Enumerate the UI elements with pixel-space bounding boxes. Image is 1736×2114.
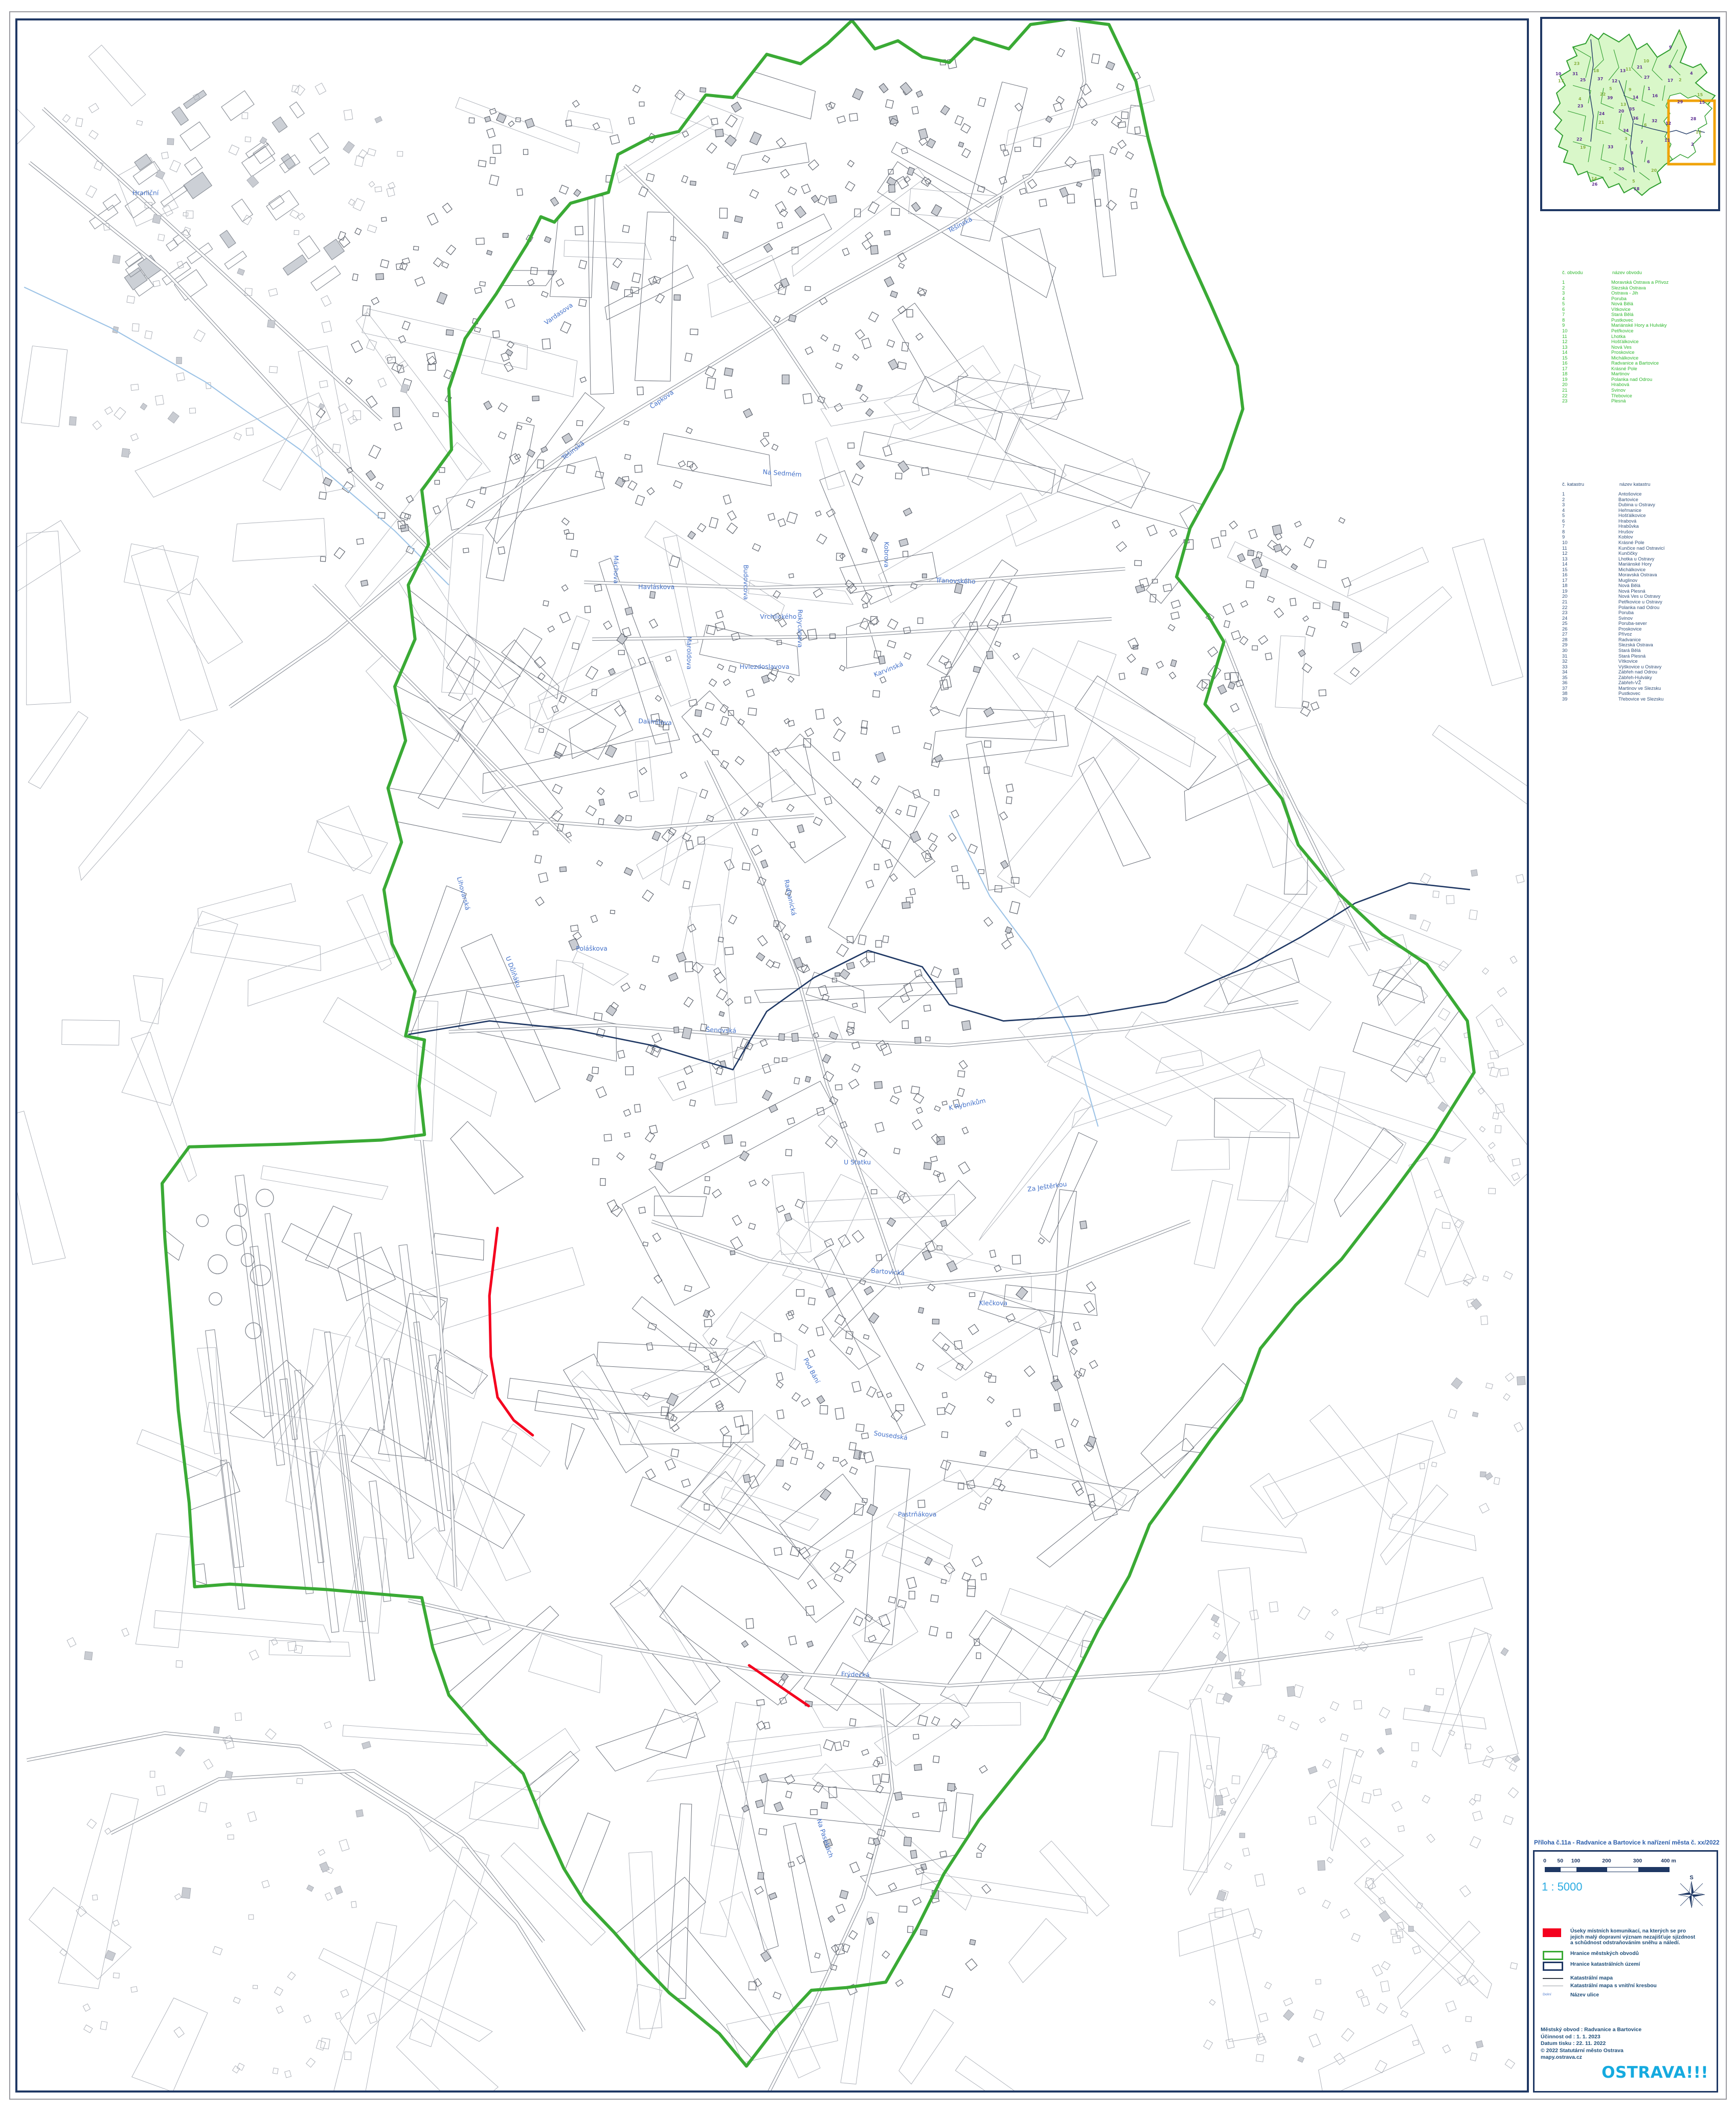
legend-label: Katastrální mapa bbox=[1570, 1975, 1613, 1982]
credits-block: Městský obvod : Radvanice a BartoviceÚči… bbox=[1541, 2027, 1641, 2061]
street-label: Pod Bání bbox=[802, 1357, 822, 1385]
row-number: 11 bbox=[1562, 546, 1618, 551]
row-name: Muglinov bbox=[1618, 578, 1637, 583]
legend-label: Hranice městských obvodů bbox=[1570, 1951, 1639, 1957]
inset-cadastre-number: 23 bbox=[1577, 104, 1583, 108]
row-name: Hrušov bbox=[1618, 529, 1633, 534]
inset-cadastre-number: 24 bbox=[1599, 111, 1605, 116]
row-name: Nová Bělá bbox=[1611, 301, 1633, 306]
inset-district-number: 11 bbox=[1626, 67, 1632, 72]
inset-cadastre-number: 9 bbox=[1669, 45, 1672, 50]
street-label: Kobrova bbox=[883, 542, 891, 567]
row-number: 18 bbox=[1562, 371, 1611, 377]
street-label: Lihovarská bbox=[456, 876, 472, 911]
credits-line: Účinnost od : 1. 1. 2023 bbox=[1541, 2034, 1641, 2041]
row-number: 12 bbox=[1562, 339, 1611, 345]
list-header-name: název katastru bbox=[1619, 482, 1650, 487]
row-name: Pustkovec bbox=[1611, 318, 1633, 323]
street-label: Máchova bbox=[613, 555, 620, 584]
street-label: Těšínská bbox=[559, 439, 585, 462]
list-row: 23Plesná bbox=[1562, 398, 1626, 404]
inset-cadastre-number: 32 bbox=[1652, 119, 1657, 123]
row-number: 17 bbox=[1562, 578, 1618, 583]
row-number: 3 bbox=[1562, 502, 1618, 508]
list-row: 21Svinov bbox=[1562, 388, 1626, 393]
district-boundary-green bbox=[162, 20, 1474, 2066]
inset-cadastre-number: 20 bbox=[1618, 109, 1625, 114]
title-block: 050100200300400 m 1 : 5000 S Úseky místn… bbox=[1533, 1850, 1718, 2093]
row-name: Zábřeh-VŽ bbox=[1618, 680, 1641, 685]
inset-district-number: 9 bbox=[1629, 87, 1632, 92]
row-number: 23 bbox=[1562, 398, 1611, 404]
cadastral-linework-outside bbox=[17, 45, 1527, 2090]
row-number: 19 bbox=[1562, 377, 1611, 383]
list-row: 14Mariánské Hory bbox=[1562, 561, 1652, 567]
list-row: 11Lhotka bbox=[1562, 334, 1626, 340]
inset-district-number: 22 bbox=[1600, 92, 1606, 97]
row-name: Hošťálkovice bbox=[1611, 339, 1639, 344]
row-name: Hrabová bbox=[1611, 382, 1629, 387]
row-name: Přívoz bbox=[1618, 632, 1632, 637]
legend-label: Katastrální mapa s vnitřní kresbou bbox=[1570, 1983, 1657, 1989]
list-row: 12Kunčičky bbox=[1562, 551, 1637, 556]
inset-district-number: 3 bbox=[1625, 137, 1628, 141]
row-name: Radvanice a Bartovice bbox=[1611, 361, 1659, 366]
row-name: Vítkovice bbox=[1618, 659, 1638, 664]
inset-cadastre-number: 15 bbox=[1699, 100, 1705, 105]
inset-district-number: 15 bbox=[1697, 93, 1703, 97]
inset-cadastre-number: 1 bbox=[1648, 86, 1651, 91]
inset-cadastre-number: 31 bbox=[1572, 72, 1579, 76]
row-name: Lhotka bbox=[1611, 334, 1626, 339]
list-row: 24Svinov bbox=[1562, 616, 1633, 621]
list-row: 38Pustkovec bbox=[1562, 691, 1640, 696]
row-number: 14 bbox=[1562, 350, 1611, 355]
street-label: Dalimilova bbox=[638, 717, 672, 726]
list-row: 26Proskovice bbox=[1562, 626, 1641, 632]
sheet-title: Příloha č.11a - Radvanice a Bartovice k … bbox=[1534, 1839, 1718, 1846]
street-label: Vrchlického bbox=[760, 613, 797, 620]
list-row: 16Radvanice a Bartovice bbox=[1562, 361, 1659, 366]
list-row: 27Přívoz bbox=[1562, 632, 1632, 637]
street-label: U Statku bbox=[844, 1158, 871, 1166]
row-number: 20 bbox=[1562, 594, 1618, 599]
list-row: 10Krásné Pole bbox=[1562, 540, 1644, 546]
row-number: 2 bbox=[1562, 497, 1618, 503]
row-name: Pustkovec bbox=[1618, 691, 1640, 696]
row-name: Polanka nad Odrou bbox=[1618, 605, 1659, 610]
row-number: 10 bbox=[1562, 328, 1611, 334]
list-row: 22Třebovice bbox=[1562, 393, 1632, 399]
row-name: Výškovice u Ostravy bbox=[1618, 664, 1661, 669]
scalebar bbox=[1545, 1867, 1670, 1872]
row-name: Svinov bbox=[1618, 616, 1633, 621]
inset-cadastre-number: 8 bbox=[1669, 64, 1672, 69]
list-row: 2Slezská Ostrava bbox=[1562, 285, 1646, 291]
row-number: 2 bbox=[1562, 285, 1611, 291]
row-name: Lhotka u Ostravy bbox=[1618, 556, 1654, 561]
list-row: 8Hrušov bbox=[1562, 529, 1633, 535]
row-name: Hrabůvka bbox=[1618, 524, 1639, 529]
inset-district-number: 7 bbox=[1609, 167, 1612, 171]
list-row: 9Mariánské Hory a Hulváky bbox=[1562, 323, 1667, 328]
list-row: 16Moravská Ostrava bbox=[1562, 572, 1657, 578]
row-number: 9 bbox=[1562, 323, 1611, 328]
list-row: 9Koblov bbox=[1562, 534, 1633, 540]
street-label: Poláškova bbox=[576, 944, 607, 952]
legend-label: Úseky místních komunikací, na kterých se… bbox=[1570, 1928, 1695, 1946]
inset-cadastre-number: 21 bbox=[1637, 65, 1643, 70]
inset-cadastre-number: 27 bbox=[1644, 75, 1650, 80]
row-name: Plesná bbox=[1611, 398, 1626, 403]
scalebar-segment bbox=[1545, 1868, 1561, 1872]
street-labels: TěšínskáTěšínskáNa SedmémTřanovskéhoKobr… bbox=[132, 189, 1067, 1859]
list-row: 5Nová Bělá bbox=[1562, 301, 1633, 307]
inset-cadastre-number: 22 bbox=[1576, 137, 1582, 142]
row-name: Moravská Ostrava bbox=[1618, 572, 1657, 577]
row-number: 8 bbox=[1562, 529, 1618, 535]
legend-swatch-red bbox=[1543, 1928, 1561, 1937]
row-number: 30 bbox=[1562, 648, 1618, 654]
inset-district-number: 21 bbox=[1598, 120, 1605, 125]
legend-swatch-green bbox=[1543, 1951, 1563, 1960]
legend-swatch-navy bbox=[1543, 1962, 1563, 1971]
row-name: Stará Bělá bbox=[1611, 312, 1633, 317]
inset-cadastre-number: 30 bbox=[1618, 167, 1625, 171]
inset-cadastre-number: 18 bbox=[1634, 187, 1640, 191]
list-row: 25Poruba-sever bbox=[1562, 621, 1647, 626]
inset-district-number: 10 bbox=[1643, 59, 1650, 63]
row-number: 19 bbox=[1562, 589, 1618, 594]
list-row: 10Petřkovice bbox=[1562, 328, 1633, 334]
row-number: 5 bbox=[1562, 301, 1611, 307]
street-label: Budovcova bbox=[742, 565, 750, 600]
map-frame: TěšínskáTěšínskáNa SedmémTřanovskéhoKobr… bbox=[15, 18, 1529, 2093]
map-canvas: TěšínskáTěšínskáNa SedmémTřanovskéhoKobr… bbox=[17, 20, 1527, 2090]
street-label: Vardasova bbox=[543, 301, 574, 326]
row-name: Martinov ve Slezsku bbox=[1618, 686, 1661, 691]
street-label: Hviezdoslavova bbox=[740, 663, 790, 670]
row-number: 10 bbox=[1562, 540, 1618, 546]
row-number: 32 bbox=[1562, 659, 1618, 664]
inset-cadastre-number: 10 bbox=[1555, 72, 1562, 76]
inset-district-number: 20 bbox=[1651, 168, 1657, 173]
list-row: 1Antošovice bbox=[1562, 491, 1641, 497]
list-header-number: č. obvodu bbox=[1562, 270, 1583, 276]
map-scale: 1 : 5000 bbox=[1542, 1880, 1583, 1894]
row-name: Petřkovice bbox=[1611, 328, 1633, 333]
row-number: 21 bbox=[1562, 599, 1618, 605]
stream-lines bbox=[24, 287, 1098, 1127]
row-name: Dubina u Ostravy bbox=[1618, 502, 1655, 507]
inset-cadastre-number: 28 bbox=[1690, 117, 1697, 121]
legend-swatch-gray bbox=[1543, 1986, 1563, 1986]
row-number: 16 bbox=[1562, 572, 1618, 578]
row-name: Radvanice bbox=[1618, 637, 1641, 642]
row-number: 13 bbox=[1562, 556, 1618, 562]
row-name: Stará Plesná bbox=[1618, 654, 1645, 659]
street-label: Za Ještěrkou bbox=[1027, 1180, 1067, 1193]
row-name: Poruba-sever bbox=[1618, 621, 1647, 626]
street-label: Bartovická bbox=[871, 1267, 905, 1277]
row-number: 3 bbox=[1562, 290, 1611, 296]
row-number: 24 bbox=[1562, 616, 1618, 621]
list-row: 31Stará Plesná bbox=[1562, 654, 1645, 659]
inset-cadastre-number: 35 bbox=[1629, 107, 1635, 111]
row-number: 6 bbox=[1562, 519, 1618, 524]
scalebar-tick: 400 m bbox=[1661, 1858, 1676, 1864]
inset-cadastre-number: 16 bbox=[1652, 94, 1658, 98]
row-number: 12 bbox=[1562, 551, 1618, 556]
inset-cadastre-number: 4 bbox=[1690, 71, 1693, 76]
scalebar-segment bbox=[1561, 1868, 1576, 1872]
row-name: Mariánské Hory a Hulváky bbox=[1611, 323, 1667, 328]
list-row: 6Hrabová bbox=[1562, 519, 1636, 524]
row-number: 13 bbox=[1562, 345, 1611, 350]
row-name: Nová Ves u Ostravy bbox=[1618, 594, 1660, 599]
row-name: Krásné Pole bbox=[1611, 366, 1637, 371]
row-name: Nová Bělá bbox=[1618, 583, 1640, 588]
scalebar-tick: 100 bbox=[1571, 1858, 1581, 1864]
row-number: 38 bbox=[1562, 691, 1618, 696]
building-footprints bbox=[60, 49, 1525, 2078]
row-number: 27 bbox=[1562, 632, 1618, 637]
row-number: 23 bbox=[1562, 610, 1618, 616]
row-name: Krásné Pole bbox=[1618, 540, 1644, 545]
row-name: Martinov bbox=[1611, 371, 1630, 376]
list-row: 5Hošťálkovice bbox=[1562, 513, 1646, 519]
inset-cadastre-number: 12 bbox=[1665, 121, 1671, 126]
row-number: 6 bbox=[1562, 307, 1611, 312]
list-row: 17Krásné Pole bbox=[1562, 366, 1637, 372]
street-label: Frýdecká bbox=[841, 1670, 870, 1679]
inset-cadastre-number: 2 bbox=[1691, 142, 1694, 147]
row-number: 21 bbox=[1562, 388, 1611, 393]
cadastre-boundary-line bbox=[408, 883, 1470, 1069]
list-row: 11Kunčice nad Ostravicí bbox=[1562, 546, 1664, 551]
inset-cadastre-number: 7 bbox=[1640, 140, 1643, 145]
scalebar-tick: 50 bbox=[1557, 1858, 1563, 1864]
row-number: 25 bbox=[1562, 621, 1618, 626]
legend-swatch-dark bbox=[1543, 1978, 1563, 1979]
cadastral-linework-inside bbox=[17, 69, 1523, 2090]
inset-cadastre-number: 26 bbox=[1592, 182, 1598, 187]
street-label: Radvanická bbox=[783, 879, 798, 916]
list-row: 36Zábřeh-VŽ bbox=[1562, 680, 1641, 686]
row-name: Mariánské Hory bbox=[1618, 561, 1652, 567]
scalebar-tick: 0 bbox=[1543, 1858, 1546, 1864]
row-number: 14 bbox=[1562, 561, 1618, 567]
street-label: Šenovská bbox=[706, 1026, 736, 1034]
street-label: Třanovského bbox=[935, 576, 976, 586]
legend-swatch-street: Dolní bbox=[1543, 1992, 1551, 1996]
row-number: 39 bbox=[1562, 696, 1618, 702]
list-row: 7Stará Bělá bbox=[1562, 312, 1633, 318]
street-label: Na Pasekách bbox=[815, 1818, 835, 1859]
inset-district-number: 5 bbox=[1609, 86, 1612, 91]
inset-cadastre-number: 11 bbox=[1664, 138, 1671, 143]
ostrava-logo: OSTRAVA!!! bbox=[1602, 2063, 1708, 2082]
row-number: 26 bbox=[1562, 626, 1618, 632]
list-row: 20Nová Ves u Ostravy bbox=[1562, 594, 1660, 599]
compass-rose: S bbox=[1674, 1872, 1709, 1915]
row-name: Ostrava - Jih bbox=[1611, 290, 1638, 296]
list-row: 18Martinov bbox=[1562, 371, 1630, 377]
row-number: 29 bbox=[1562, 642, 1618, 648]
legend-list-cadastres: č. katastru název katastru 1Antošovice2B… bbox=[1561, 482, 1715, 707]
row-name: Heřmanice bbox=[1618, 508, 1641, 513]
row-number: 5 bbox=[1562, 513, 1618, 519]
list-row: 28Radvanice bbox=[1562, 637, 1641, 643]
row-name: Zábřeh-Hulváky bbox=[1618, 675, 1652, 680]
inset-cadastre-number: 3 bbox=[1631, 151, 1634, 155]
street-label: K Rybníkům bbox=[948, 1096, 986, 1112]
row-number: 34 bbox=[1562, 669, 1618, 675]
list-row: 19Nová Plesná bbox=[1562, 589, 1645, 594]
scalebar-segment bbox=[1638, 1868, 1670, 1872]
inset-cadastre-number: 14 bbox=[1633, 95, 1639, 100]
inset-district-number: 4 bbox=[1579, 97, 1582, 101]
row-name: Poruba bbox=[1618, 610, 1634, 615]
list-row: 2Bartovice bbox=[1562, 497, 1638, 503]
inset-district-number: 2 bbox=[1679, 78, 1682, 82]
list-row: 3Dubina u Ostravy bbox=[1562, 502, 1655, 508]
inset-district-number: 19 bbox=[1580, 145, 1586, 150]
row-number: 28 bbox=[1562, 637, 1618, 643]
inset-district-number: 18 bbox=[1593, 69, 1599, 73]
inset-district-number: 1 bbox=[1679, 31, 1682, 35]
row-number: 4 bbox=[1562, 296, 1611, 302]
row-number: 9 bbox=[1562, 534, 1618, 540]
row-name: Vítkovice bbox=[1611, 307, 1631, 312]
inset-district-number: 13 bbox=[1620, 102, 1626, 107]
inset-cadastre-number: 17 bbox=[1667, 78, 1673, 83]
scalebar-tick: 300 bbox=[1633, 1858, 1642, 1864]
row-name: Nová Plesná bbox=[1618, 589, 1645, 594]
inset-district-number: 23 bbox=[1574, 61, 1580, 66]
row-number: 15 bbox=[1562, 355, 1611, 361]
list-row: 35Zábřeh-Hulváky bbox=[1562, 675, 1652, 681]
list-row: 37Martinov ve Slezsku bbox=[1562, 686, 1661, 691]
scalebar-segment bbox=[1607, 1868, 1638, 1872]
inset-district-number: 17 bbox=[1558, 79, 1564, 83]
list-row: 13Nová Ves bbox=[1562, 345, 1632, 350]
list-row: 6Vítkovice bbox=[1562, 307, 1631, 312]
list-row: 1Moravská Ostrava a Přívoz bbox=[1562, 280, 1669, 285]
row-name: Slezská Ostrava bbox=[1618, 642, 1653, 647]
row-name: Polanka nad Odrou bbox=[1611, 377, 1652, 382]
row-name: Michálkovice bbox=[1611, 355, 1638, 361]
row-name: Antošovice bbox=[1618, 491, 1641, 497]
row-name: Kunčice nad Ostravicí bbox=[1618, 546, 1664, 551]
row-number: 37 bbox=[1562, 686, 1618, 691]
list-row: 15Michálkovice bbox=[1562, 567, 1645, 573]
map-sheet-page: { "page": { "title": "Příloha č.11a - Ra… bbox=[0, 0, 1736, 2114]
street-label: Na Sedmém bbox=[762, 468, 802, 478]
list-row: 18Nová Bělá bbox=[1562, 583, 1640, 589]
credits-line: mapy.ostrava.cz bbox=[1541, 2054, 1641, 2061]
inset-cadastre-number: 12 bbox=[1612, 79, 1617, 83]
row-name: Bartovice bbox=[1618, 497, 1638, 502]
list-header-name: název obvodu bbox=[1612, 270, 1642, 276]
row-name: Petřkovice u Ostravy bbox=[1618, 599, 1662, 604]
list-row: 15Michálkovice bbox=[1562, 355, 1638, 361]
row-number: 7 bbox=[1562, 524, 1618, 529]
inset-cadastre-number: 39 bbox=[1607, 96, 1613, 100]
list-row: 13Lhotka u Ostravy bbox=[1562, 556, 1654, 562]
street-label: Hraniční bbox=[132, 189, 159, 197]
inset-cadastre-number: 33 bbox=[1608, 145, 1613, 149]
row-name: Moravská Ostrava a Přívoz bbox=[1611, 280, 1669, 285]
row-name: Proskovice bbox=[1618, 626, 1641, 632]
credits-line: Městský obvod : Radvanice a Bartovice bbox=[1541, 2027, 1641, 2034]
row-number: 1 bbox=[1562, 491, 1618, 497]
row-name: Třebovice ve Slezsku bbox=[1618, 696, 1663, 702]
row-name: Slezská Ostrava bbox=[1611, 285, 1646, 290]
row-number: 33 bbox=[1562, 664, 1618, 670]
list-row: 4Poruba bbox=[1562, 296, 1627, 302]
credits-line: © 2022 Statutární město Ostrava bbox=[1541, 2048, 1641, 2055]
list-header-number: č. katastru bbox=[1562, 482, 1584, 487]
row-name: Zábřeh nad Odrou bbox=[1618, 669, 1657, 674]
row-number: 22 bbox=[1562, 393, 1611, 399]
legend-list-city-districts: č. obvodu název obvodu 1Moravská Ostrava… bbox=[1561, 270, 1715, 408]
legend-label: Název ulice bbox=[1570, 1992, 1599, 1998]
row-number: 17 bbox=[1562, 366, 1611, 372]
road-network bbox=[27, 27, 1423, 2090]
row-name: Hošťálkovice bbox=[1618, 513, 1646, 518]
inset-district-number: 14 bbox=[1591, 176, 1597, 181]
row-number: 4 bbox=[1562, 508, 1618, 513]
list-row: 3Ostrava - Jih bbox=[1562, 290, 1638, 296]
row-name: Stará Bělá bbox=[1618, 648, 1640, 653]
row-number: 1 bbox=[1562, 280, 1611, 285]
street-label: Klečkova bbox=[979, 1299, 1007, 1307]
list-row: 20Hrabová bbox=[1562, 382, 1629, 388]
list-row: 14Proskovice bbox=[1562, 350, 1634, 355]
inset-cadastre-number: 13 bbox=[1620, 69, 1626, 73]
row-number: 35 bbox=[1562, 675, 1618, 681]
row-number: 20 bbox=[1562, 382, 1611, 388]
row-name: Nová Ves bbox=[1611, 345, 1632, 350]
inset-cadastre-number: 29 bbox=[1677, 100, 1683, 104]
street-label: Havláskova bbox=[638, 583, 674, 591]
inset-district-number: 16 bbox=[1696, 130, 1702, 134]
list-row: 21Petřkovice u Ostravy bbox=[1562, 599, 1662, 605]
legend-label: Hranice katastrálních území bbox=[1570, 1962, 1640, 1968]
row-number: 18 bbox=[1562, 583, 1618, 589]
inset-cadastre-number: 25 bbox=[1580, 78, 1586, 82]
list-row: 33Výškovice u Ostravy bbox=[1562, 664, 1661, 670]
inset-district-number: 5 bbox=[1632, 179, 1635, 184]
row-number: 7 bbox=[1562, 312, 1611, 318]
list-row: 12Hošťálkovice bbox=[1562, 339, 1639, 345]
list-row: 7Hrabůvka bbox=[1562, 524, 1639, 529]
list-row: 39Třebovice ve Slezsku bbox=[1562, 696, 1663, 702]
inset-cadastre-number: 37 bbox=[1597, 77, 1603, 81]
list-row: 34Zábřeh nad Odrou bbox=[1562, 669, 1657, 675]
list-row: 22Polanka nad Odrou bbox=[1562, 605, 1659, 611]
row-name: Kunčičky bbox=[1618, 551, 1637, 556]
credits-line: Datum tisku : 22. 11. 2022 bbox=[1541, 2040, 1641, 2048]
inset-cadastre-number: 6 bbox=[1647, 160, 1650, 164]
scalebar-tick: 200 bbox=[1602, 1858, 1611, 1864]
inset-canvas: 1031253712132198174271161415292035363212… bbox=[1542, 19, 1718, 209]
row-name: Svinov bbox=[1611, 388, 1626, 393]
scalebar-segment bbox=[1576, 1868, 1608, 1872]
row-name: Poruba bbox=[1611, 296, 1627, 301]
list-row: 8Pustkovec bbox=[1562, 318, 1633, 323]
